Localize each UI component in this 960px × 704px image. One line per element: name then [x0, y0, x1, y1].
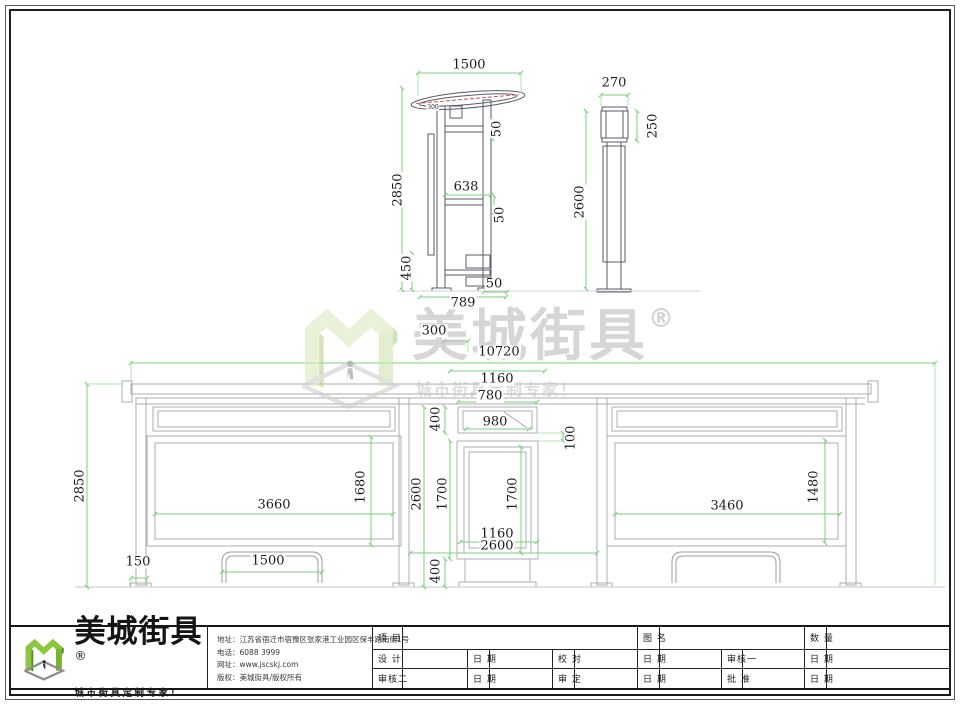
registered-mark: ®: [74, 649, 86, 663]
title-table-label-cell: 审核二: [373, 669, 403, 688]
rear-post: [437, 106, 445, 288]
company-info-line: 网址：www.jscskj.com: [217, 659, 372, 672]
company-logo: 美城街具® 城市街具定制专家！: [11, 627, 208, 688]
title-table-label-cell: 设 计: [373, 650, 403, 669]
title-table-value-cell: [660, 627, 805, 649]
lamp-base: [602, 138, 627, 142]
title-table-value-cell: [575, 669, 638, 688]
post: [136, 398, 146, 585]
title-block: 美城街具® 城市街具定制专家！ 地址：江苏省宿迁市宿豫区张家港工业园区保丰路南侧…: [11, 625, 949, 690]
title-table-label-cell: 批 准: [722, 669, 743, 688]
lamp-box: [601, 111, 628, 138]
title-table-label-cell: 项 目: [373, 627, 403, 649]
ad-panel-right: [607, 436, 846, 546]
front-elevation: [122, 381, 878, 587]
title-table-label-cell: 日 期: [638, 669, 660, 688]
person-icon: [43, 660, 46, 668]
title-table-value-cell: [490, 650, 553, 669]
title-table-label-cell: 图 名: [638, 627, 660, 649]
title-table-value-cell: [403, 650, 468, 669]
title-table-value-cell: [403, 669, 468, 688]
title-table-label-cell: 日 期: [805, 650, 827, 669]
title-table-label-cell: 校 对: [553, 650, 575, 669]
title-table-cell-text: 设 计: [378, 652, 402, 665]
canopy-bracket: [450, 106, 462, 118]
company-info-line: 版权：美城街具/版权所有: [217, 672, 372, 685]
title-table-label-cell: 日 期: [638, 650, 660, 669]
company-brand: 美城街具: [74, 614, 202, 650]
company-info-line: 地址：江苏省宿迁市宿豫区张家港工业园区保丰路南侧1号: [217, 634, 372, 647]
crossbar-upper: [445, 126, 483, 132]
title-table-label-cell: 数 量: [805, 627, 827, 649]
extension-lines: [87, 73, 935, 586]
canopy: [411, 87, 526, 113]
title-table-label-cell: 审核一: [722, 650, 743, 669]
title-table-value-cell: [490, 669, 553, 688]
company-info: 地址：江苏省宿迁市宿豫区张家港工业园区保丰路南侧1号电话：6088 3999网址…: [208, 627, 373, 688]
title-table-value-cell: [575, 650, 638, 669]
pillar-neck: [465, 559, 530, 582]
title-table-label-cell: 日 期: [468, 669, 490, 688]
post-column: [607, 142, 621, 289]
title-table-value-cell: [827, 650, 949, 669]
title-table-value-cell: [660, 669, 722, 688]
post: [846, 398, 856, 585]
bin-upper: [466, 255, 490, 268]
post-side-view: [597, 107, 631, 292]
roof-band: [131, 384, 871, 394]
title-table-row: 审核二日 期审 定日 期批 准日 期: [373, 669, 949, 688]
company-tagline: 城市街具定制专家！: [74, 685, 207, 699]
title-table-label-cell: 日 期: [468, 650, 490, 669]
bench-right: [672, 552, 780, 583]
bin-lower: [466, 277, 490, 286]
title-table-value-cell: [743, 650, 805, 669]
lamp-cap: [602, 107, 627, 111]
crossbar-lower: [445, 199, 483, 205]
ad-panel-left: [147, 436, 401, 546]
drawing-sheet: 美城街具® 城市街具定制专家！ 150030028505063850450507…: [0, 0, 960, 704]
shelter-side-view: [411, 87, 526, 291]
post-sleeve: [603, 146, 625, 262]
title-table-row: 设 计日 期校 对日 期审核一日 期: [373, 650, 949, 670]
title-table-row: 项 目图 名数 量: [373, 627, 949, 650]
company-info-line: 电话：6088 3999: [217, 647, 372, 660]
title-table-value-cell: [827, 669, 949, 688]
title-table-label-cell: 审 定: [553, 669, 575, 688]
title-table-label-cell: 日 期: [805, 669, 827, 688]
post: [597, 398, 607, 585]
title-table: 项 目图 名数 量设 计日 期校 对日 期审核一日 期审核二日 期审 定日 期批…: [373, 627, 949, 688]
dimension-lines: [87, 73, 935, 587]
pillar-top-diagonal: [504, 412, 527, 428]
bench-left: [222, 552, 322, 583]
title-table-value-cell: [403, 627, 638, 649]
pillar-base-plate: [459, 582, 536, 587]
title-table-value-cell: [827, 627, 949, 649]
title-table-value-cell: [743, 669, 805, 688]
company-logo-m-icon: [21, 633, 66, 683]
title-table-value-cell: [660, 650, 722, 669]
technical-drawing: [0, 0, 960, 704]
title-table-cell-text: 项 目: [378, 631, 402, 644]
side-panel-edge: [428, 134, 434, 255]
